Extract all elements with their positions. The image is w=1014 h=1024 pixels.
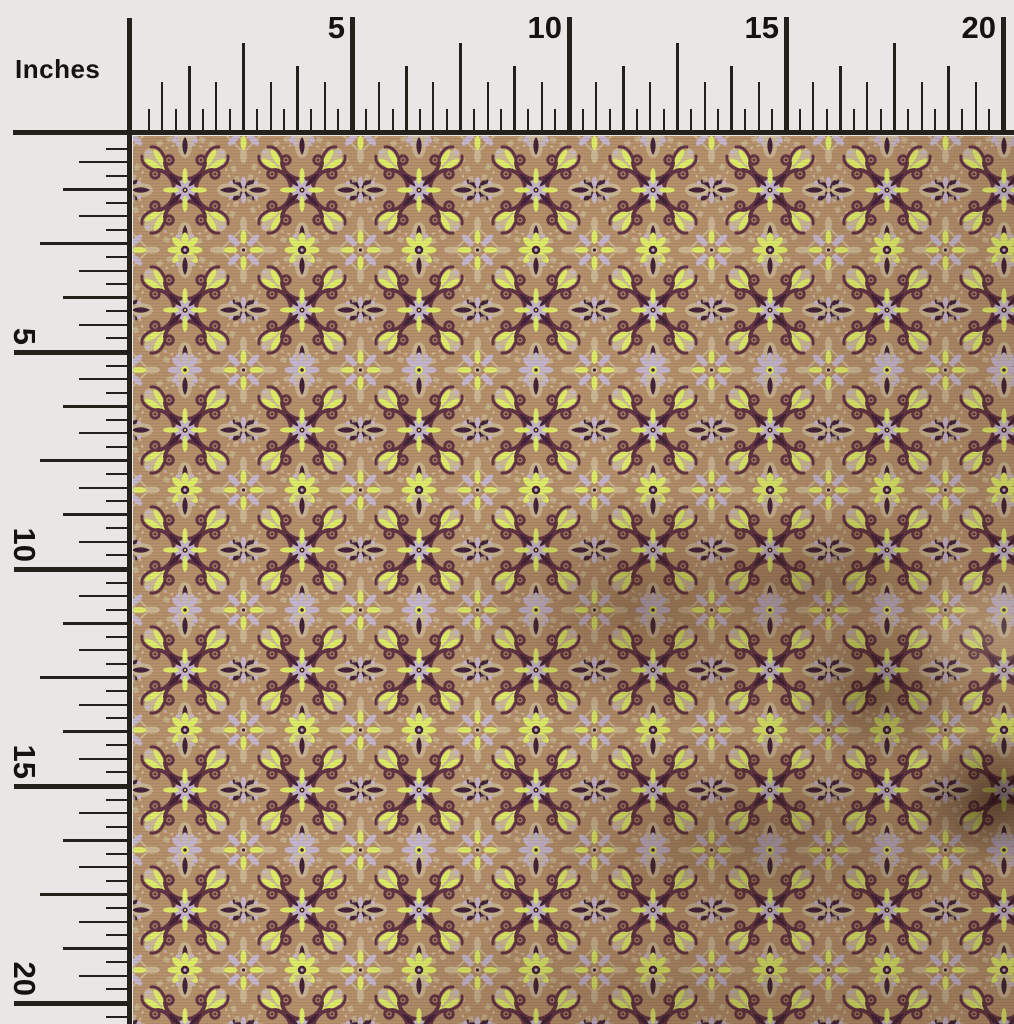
ruler-tick <box>595 82 597 133</box>
ruler-tick <box>405 66 408 133</box>
ruler-tick <box>649 82 651 133</box>
fabric-ruler-photo: Inches 5 10 15 20 5 10 15 20 <box>0 0 1014 1024</box>
ruler-tick <box>14 350 130 355</box>
ruler-number-top-15: 15 <box>745 12 779 43</box>
ruler-tick <box>79 866 130 868</box>
ruler-tick <box>947 66 950 133</box>
ruler-tick <box>378 82 380 133</box>
ruler-tick <box>63 513 130 516</box>
ruler-tick <box>79 215 130 217</box>
left-ruler-spine <box>127 18 132 1024</box>
ruler-tick <box>188 66 191 133</box>
ruler-tick <box>40 893 130 896</box>
ruler-tick <box>921 82 923 133</box>
ruler-number-left-15: 15 <box>9 745 40 779</box>
top-ruler-baseline <box>13 130 1014 135</box>
ruler-tick <box>79 324 130 326</box>
ruler-tick <box>1001 17 1006 133</box>
ruler-tick <box>40 676 130 679</box>
ruler-number-top-10: 10 <box>528 12 562 43</box>
ruler-tick <box>839 66 842 133</box>
ruler-tick <box>350 17 355 133</box>
ruler-tick <box>784 17 789 133</box>
ruler-tick <box>812 82 814 133</box>
ruler-tick <box>79 432 130 434</box>
ruler-tick <box>79 595 130 597</box>
ruler-tick <box>893 43 896 133</box>
ruler-tick <box>676 43 679 133</box>
ruler-tick <box>14 784 130 789</box>
ruler-tick <box>622 66 625 133</box>
left-ruler <box>0 0 130 1024</box>
ruler-tick <box>79 758 130 760</box>
ruler-tick <box>63 730 130 733</box>
ruler-tick <box>513 66 516 133</box>
ruler-tick <box>79 161 130 163</box>
ruler-tick <box>63 405 130 408</box>
ruler-tick <box>14 567 130 572</box>
fabric-swatch <box>133 136 1014 1024</box>
ruler-tick <box>63 188 130 191</box>
ruler-tick <box>79 270 130 272</box>
ruler-tick <box>63 947 130 950</box>
ruler-tick <box>79 487 130 489</box>
ruler-tick <box>63 296 130 299</box>
ruler-tick <box>79 975 130 977</box>
ruler-tick <box>432 82 434 133</box>
ruler-tick <box>242 43 245 133</box>
ruler-tick <box>704 82 706 133</box>
ruler-tick <box>758 82 760 133</box>
ruler-tick <box>270 82 272 133</box>
ruler-number-left-5: 5 <box>9 328 40 345</box>
ruler-tick <box>161 82 163 133</box>
ruler-tick <box>79 541 130 543</box>
ruler-tick <box>975 82 977 133</box>
ruler-tick <box>79 921 130 923</box>
ruler-number-left-20: 20 <box>9 962 40 996</box>
top-ruler <box>0 0 1014 133</box>
ruler-tick <box>63 839 130 842</box>
ruler-number-top-5: 5 <box>328 12 345 43</box>
ruler-tick <box>459 43 462 133</box>
ruler-tick <box>79 649 130 651</box>
ruler-tick <box>866 82 868 133</box>
ruler-tick <box>215 82 217 133</box>
ruler-tick <box>63 622 130 625</box>
ruler-tick <box>487 82 489 133</box>
ruler-tick <box>567 17 572 133</box>
ruler-tick <box>296 66 299 133</box>
ruler-tick <box>79 812 130 814</box>
ruler-tick <box>541 82 543 133</box>
ruler-tick <box>79 704 130 706</box>
ruler-tick <box>40 459 130 462</box>
ruler-tick <box>730 66 733 133</box>
ruler-tick <box>40 242 130 245</box>
ruler-number-top-20: 20 <box>962 12 996 43</box>
ruler-tick <box>14 1001 130 1006</box>
ruler-tick <box>324 82 326 133</box>
fabric-print-pattern <box>133 136 1014 1024</box>
ruler-tick <box>79 378 130 380</box>
ruler-number-left-10: 10 <box>9 528 40 562</box>
